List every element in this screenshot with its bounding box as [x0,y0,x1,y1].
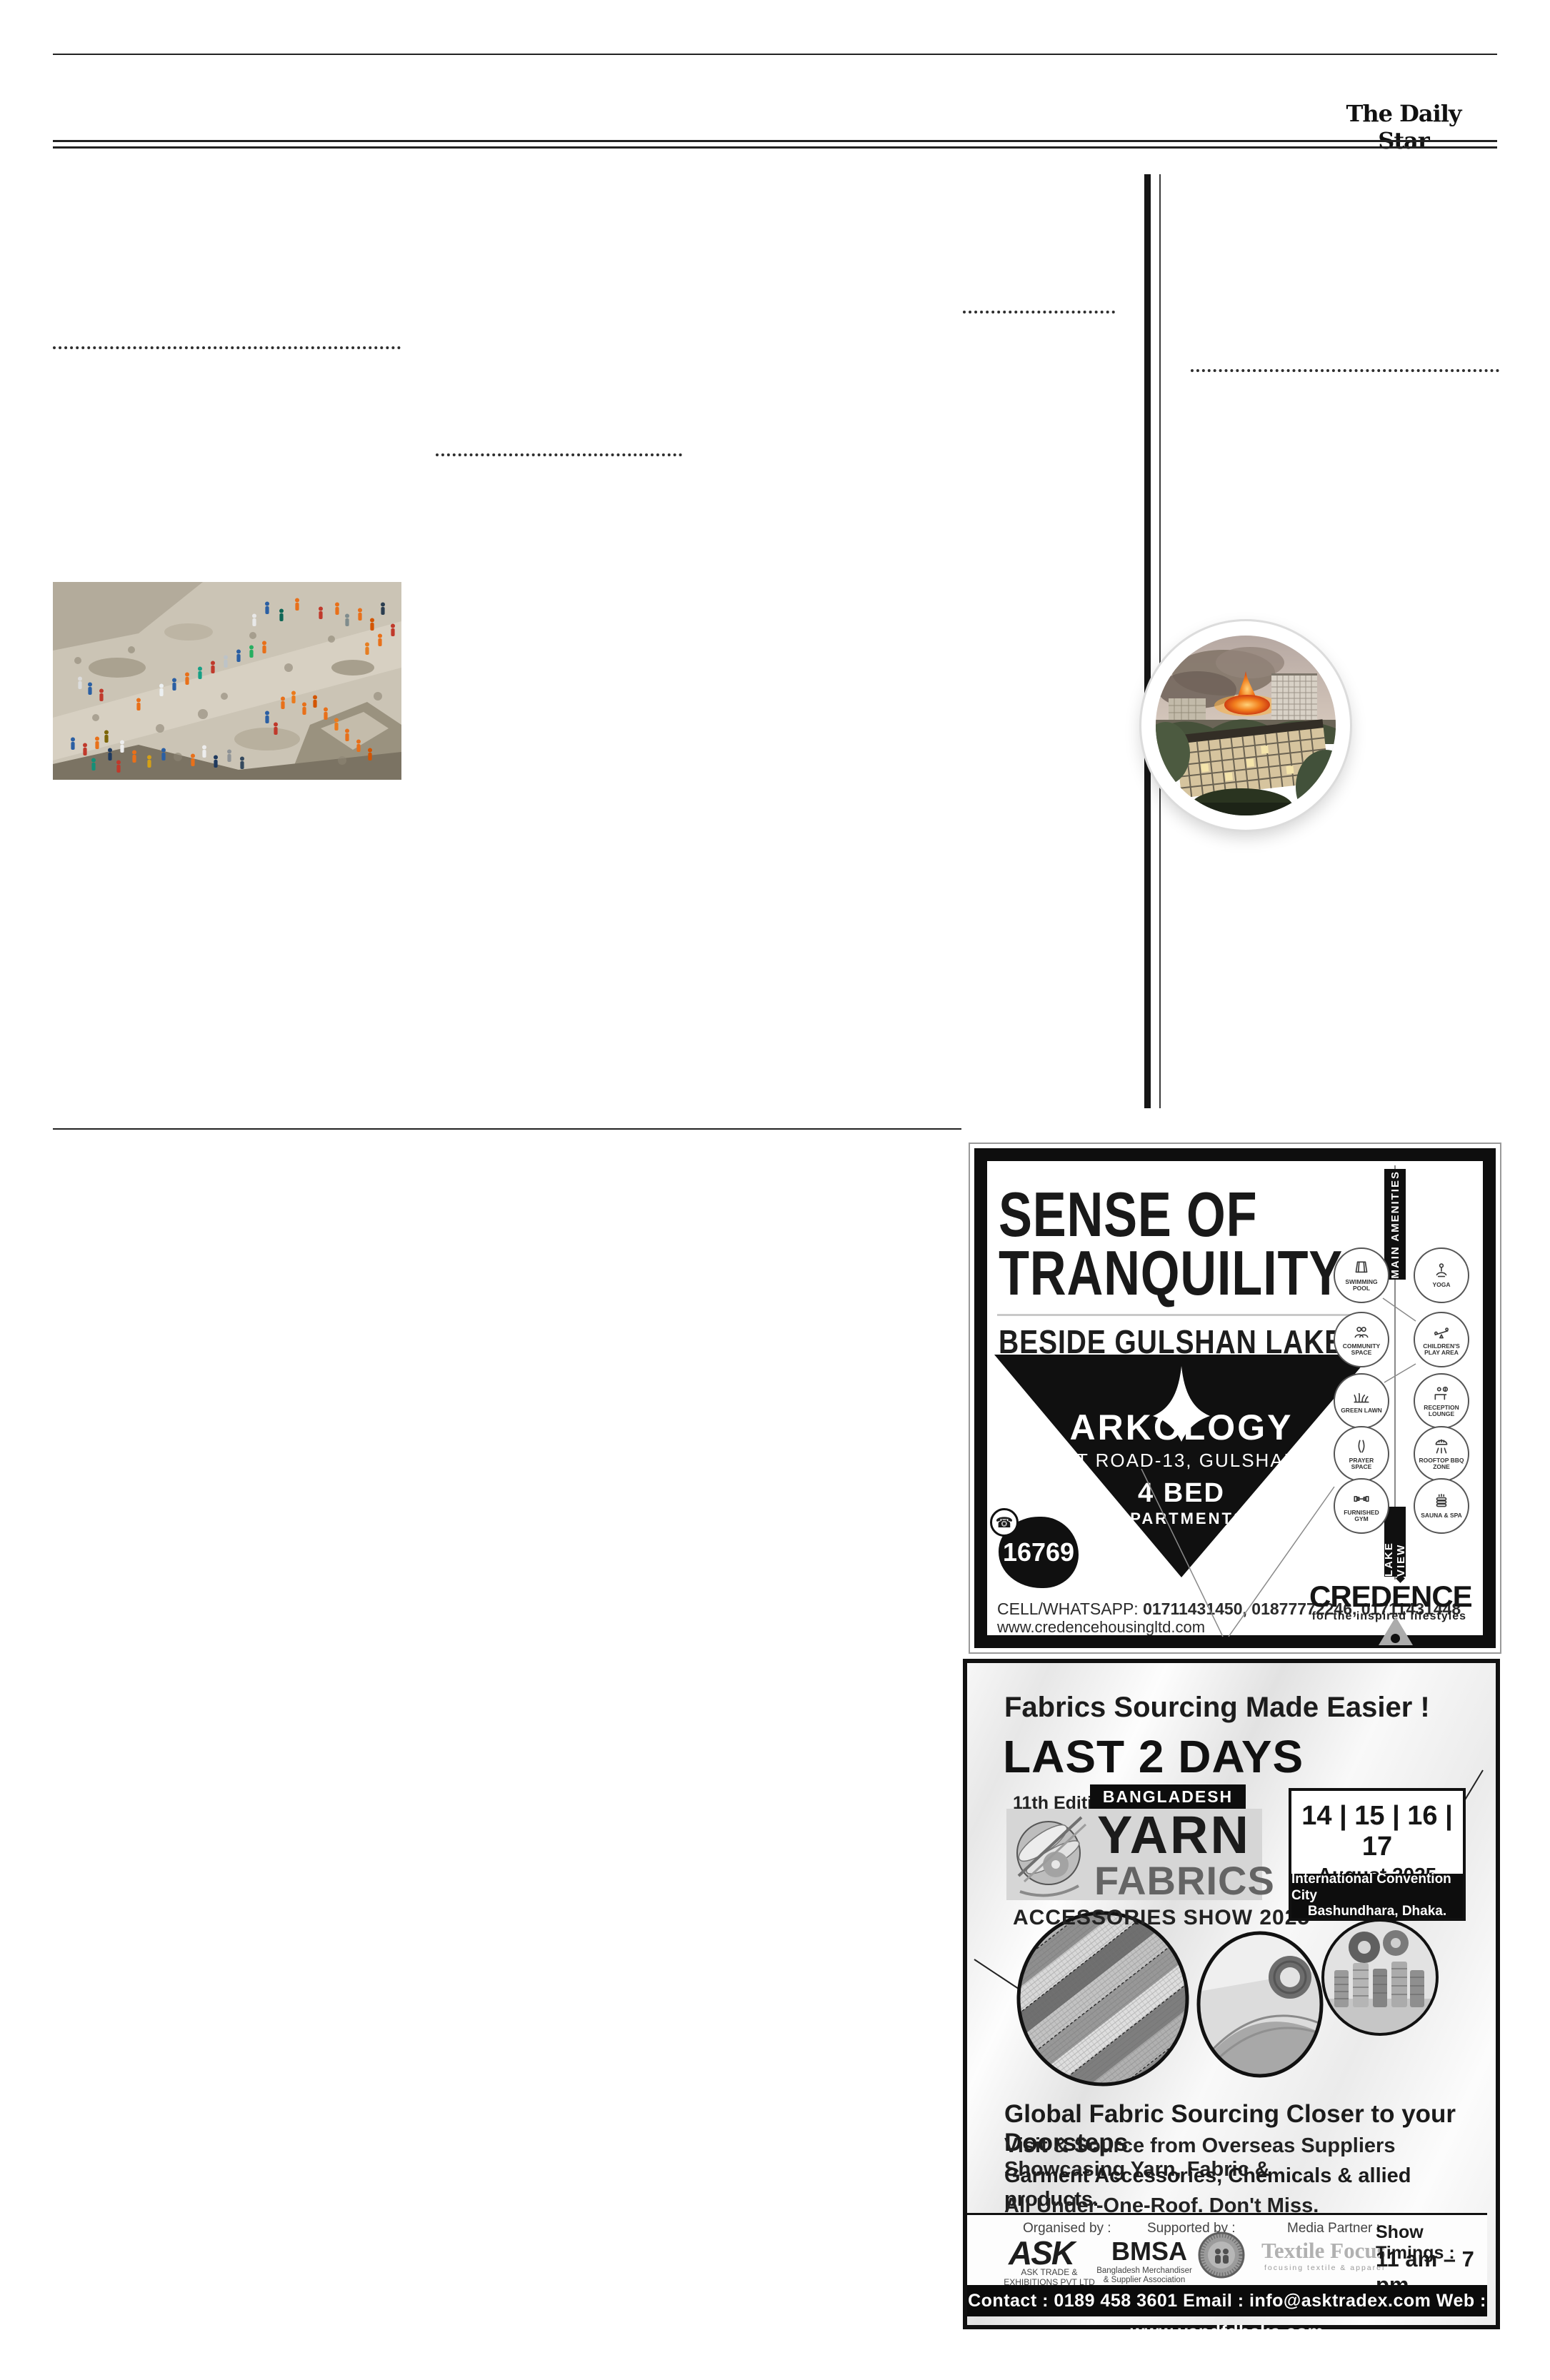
amenity-childrens-play-area: CHILDREN'S PLAY AREA [1414,1312,1469,1367]
merchandisers-emblem-logo [1197,2231,1246,2279]
amenity-furnished-gym: FURNISHED GYM [1334,1478,1389,1534]
lake-view-banner: LAKE VIEW [1384,1507,1406,1577]
bmsa-logo: BMSA [1111,2236,1187,2266]
yarn-contact-bar: Contact : 0189 458 3601 Email : info@ask… [967,2285,1487,2316]
amenity-prayer-space: PRAYER SPACE [1334,1426,1389,1482]
double-rule-top [53,140,1497,142]
textile-focus-logo: Textile Focus [1261,2238,1386,2264]
bbq-grill-icon [1432,1437,1451,1456]
yarn-logo-line1: YARN [1097,1804,1251,1865]
community-icon [1352,1323,1371,1342]
main-amenities-banner: MAIN AMENITIES [1384,1169,1406,1280]
newspaper-page: The Daily Star [0,0,1550,2380]
rescue-scene-illustration [53,582,401,780]
swimming-pool-icon [1352,1259,1371,1277]
dotted-separator-col3 [963,311,1115,313]
credence-triangle-dot [1391,1634,1400,1643]
phone-icon: ☎ [990,1508,1019,1537]
yarn-tagline: Fabrics Sourcing Made Easier ! [1004,1692,1430,1724]
arkology-ad: SENSE OF TRANQUILITY BESIDE GULSHAN LAKE… [969,1143,1501,1654]
praying-hands-icon [1352,1437,1371,1456]
dotted-separator-middle [436,453,682,456]
building-fire-illustration [1156,636,1336,815]
dotted-separator-left [53,346,401,349]
top-rule [53,54,1497,55]
dumbbell-icon [1352,1490,1371,1508]
ask-logo: ASK [1009,2234,1074,2272]
seesaw-icon [1432,1323,1451,1342]
amenity-swimming-pool: SWIMMING POOL [1334,1247,1389,1303]
venue-line2: Bashundhara, Dhaka. [1308,1904,1446,1920]
hotline-number: 16769 [1003,1537,1074,1567]
amenity-sauna-spa: SAUNA & SPA [1414,1478,1469,1534]
dotted-separator-right [1191,369,1499,372]
amenity-reception-lounge: RECEPTION LOUNGE [1414,1373,1469,1429]
yarn-urgency: LAST 2 DAYS [1003,1730,1304,1783]
partners-footer: Organised by : ASK ASK TRADE & EXHIBITIO… [967,2213,1487,2287]
bmsa-name: Bangladesh Merchandiser & Supplier Assoc… [1094,2266,1194,2285]
venue-banner: International Convention City Bashundhar… [1291,1874,1463,1918]
media-partner-label: Media Partner : [1287,2221,1380,2236]
double-rule-bottom [53,146,1497,149]
amenity-yoga: YOGA [1414,1247,1469,1303]
rescue-scene-photo [53,582,401,780]
grass-icon [1352,1387,1371,1406]
column-divider-thick [1144,174,1151,1108]
yarn-logo-line2: FABRICS [1094,1857,1275,1904]
yoga-icon [1432,1262,1451,1280]
show-dates: 14 | 15 | 16 | 17 [1291,1801,1463,1862]
amenity-rooftop-bbq-zone: ROOFTOP BBQ ZONE [1414,1426,1469,1482]
yarn-fabrics-ad: Fabrics Sourcing Made Easier ! LAST 2 DA… [963,1659,1500,2329]
amenity-community-space: COMMUNITY SPACE [1334,1312,1389,1367]
amenity-green-lawn: GREEN LAWN [1334,1373,1389,1429]
credence-logo: CREDENCE [1309,1580,1466,1614]
section-rule [53,1128,961,1130]
building-fire-circle-photo [1156,636,1336,815]
textile-focus-tagline: focusing textile & apparel [1264,2264,1385,2272]
column-divider-thin [1159,174,1161,1108]
yarn-show-name: ACCESSORIES SHOW 2025 [1013,1906,1310,1930]
spa-towels-icon [1432,1492,1451,1511]
venue-line1: International Convention City [1291,1872,1463,1904]
reception-icon [1432,1385,1451,1403]
show-date-box: 14 | 15 | 16 | 17 August 2025 Internatio… [1289,1788,1466,1921]
yarn-ball-logo [1009,1806,1091,1902]
